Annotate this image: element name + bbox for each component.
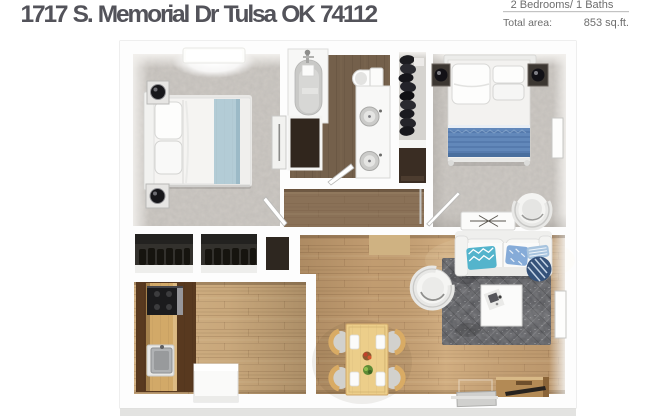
svg-text:Total area:: Total area:: [503, 17, 552, 29]
svg-text:2 Bedrooms/ 1 Baths: 2 Bedrooms/ 1 Baths: [511, 0, 614, 11]
svg-text:1717 S. Memorial Dr Tulsa OK 7: 1717 S. Memorial Dr Tulsa OK 74112: [21, 1, 378, 28]
svg-text:853 sq.ft.: 853 sq.ft.: [584, 17, 629, 29]
